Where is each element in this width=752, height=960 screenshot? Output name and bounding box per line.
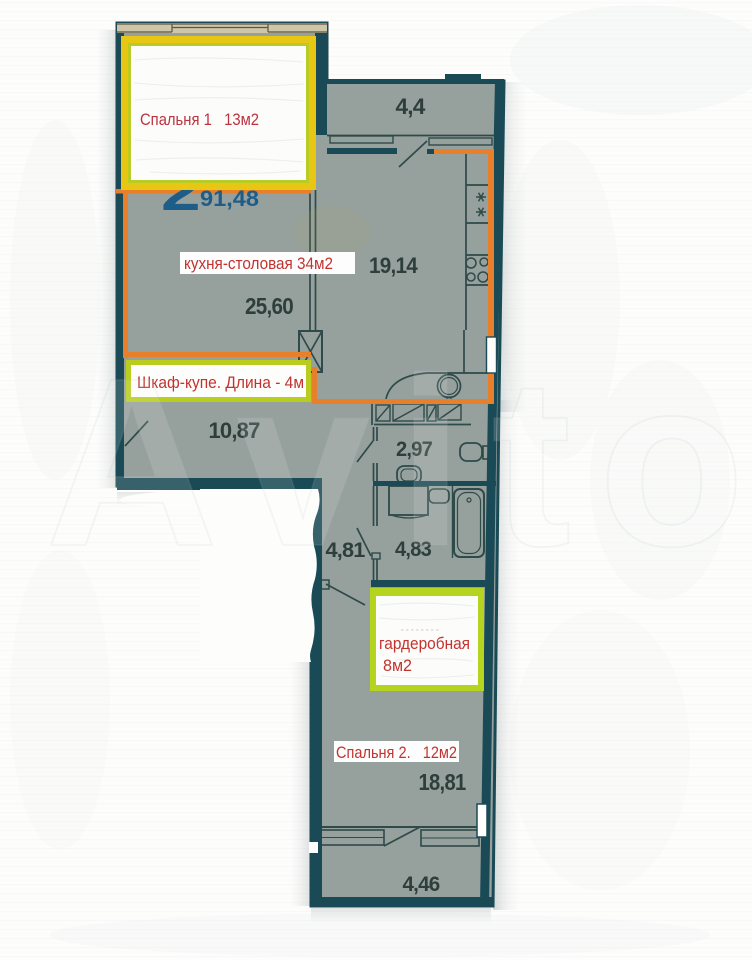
svg-text:Спальня 2. 12м2: Спальня 2. 12м2 (336, 744, 457, 762)
svg-text:4,4: 4,4 (396, 94, 427, 119)
svg-text:19,14: 19,14 (369, 253, 418, 278)
svg-text:кухня-столовая 34м2: кухня-столовая 34м2 (184, 255, 333, 273)
svg-text:18,81: 18,81 (419, 769, 467, 795)
svg-text:25,60: 25,60 (245, 293, 293, 319)
svg-text:8м2: 8м2 (383, 656, 412, 675)
svg-text:Спальня 1 13м2: Спальня 1 13м2 (140, 110, 259, 129)
svg-text:гардеробная: гардеробная (379, 635, 470, 653)
svg-text:4,46: 4,46 (403, 873, 440, 896)
